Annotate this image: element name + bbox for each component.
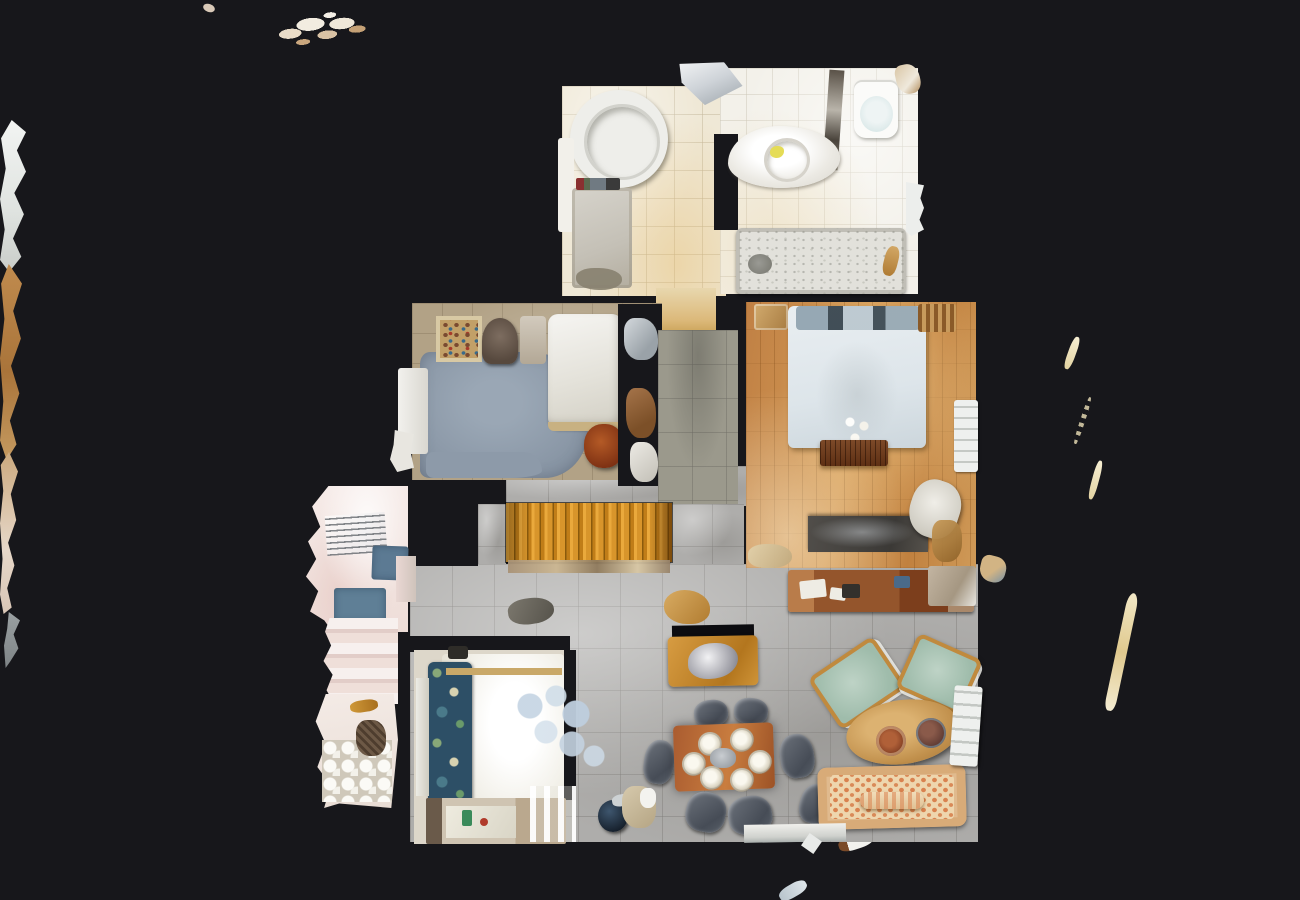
sideboard-item-dark [842, 584, 860, 598]
radiator-fragment [906, 182, 924, 236]
place-setting-plate [748, 750, 772, 774]
woven-basket [356, 720, 386, 756]
mirror-wardrobe-fragment [624, 318, 658, 360]
scan-debris-streak-long [1104, 592, 1140, 712]
sofa-bolster-cushion [860, 792, 924, 809]
wing-doorway-floor [396, 556, 416, 602]
bath-shelf-items [576, 178, 620, 190]
wall-ledge [744, 823, 846, 843]
sideboard-item-blue [894, 576, 910, 588]
coffee-table-bowl [876, 726, 906, 756]
landing-floor [658, 330, 738, 504]
scan-debris-streak-dotted [1072, 396, 1092, 445]
scan-debris-streak [1062, 336, 1081, 371]
guest-bed-frame [416, 678, 429, 796]
floral-throw [428, 662, 472, 804]
wall-item [448, 646, 468, 659]
scan-debris-left-bits [4, 612, 20, 668]
vanity-sink [764, 138, 810, 182]
closet-strip [618, 304, 662, 486]
scan-debris-left-ribbon-tan [0, 264, 22, 460]
bedroom-radiator [954, 400, 978, 472]
scan-debris-bottom-sliver-blue [777, 877, 809, 900]
hall-floor-right-of-stairs [670, 504, 744, 566]
place-setting-plate [700, 766, 724, 790]
study-cabinet [520, 316, 546, 364]
bed-pillows [796, 306, 920, 330]
hall-floor-left-of-stairs [478, 504, 506, 566]
desk-chair-frame [932, 520, 962, 562]
table-centrepiece [710, 748, 736, 768]
scan-debris-fragment [977, 553, 1009, 585]
sideboard-papers [799, 579, 827, 600]
dresser-ornament-green [462, 810, 472, 826]
closet-white-fragment [630, 442, 658, 482]
place-setting-plate [730, 728, 754, 752]
stair-top-connector-floor [656, 288, 716, 334]
wing-striped-floor [322, 618, 398, 704]
coffee-table-bowl [916, 718, 946, 748]
scan-debris-streak [1087, 460, 1104, 500]
desk-fragment [390, 430, 414, 472]
nightstand-right [918, 304, 956, 332]
floorplan-scan-stage [0, 0, 1300, 900]
study-armchair [482, 318, 518, 364]
guest-bed-headrail [446, 668, 562, 675]
daybed [548, 314, 622, 428]
staircase-under-rim [508, 560, 670, 573]
bed-end-bench [820, 440, 888, 466]
scan-debris-speck [202, 2, 216, 14]
jacuzzi-inner-ring [584, 104, 660, 180]
place-setting-plate [730, 768, 754, 792]
scan-debris-left-ribbon-white [0, 120, 26, 272]
closet-wood-fragment [626, 388, 656, 438]
toilet-seat [860, 96, 893, 132]
floor-item-tan [664, 590, 710, 624]
floor-fragment [748, 544, 792, 568]
bath-floor-item [576, 268, 622, 290]
study-rug-extension [426, 452, 542, 478]
sideboard-right-section [928, 566, 976, 606]
pendant-lamp [510, 680, 610, 770]
wall-gap [404, 476, 478, 566]
dresser-ornament-red [480, 818, 488, 826]
curtain-light-streaks [530, 786, 576, 842]
staircase [506, 503, 672, 562]
living-radiator [949, 685, 983, 767]
bookshelf [436, 316, 482, 362]
white-jug [640, 788, 656, 808]
blue-mat [334, 588, 386, 622]
nightstand-left [754, 304, 788, 330]
bathtub-drain [748, 254, 772, 274]
scan-debris-top-cluster [274, 0, 371, 57]
scan-debris-left-ribbon-pale [0, 452, 18, 614]
